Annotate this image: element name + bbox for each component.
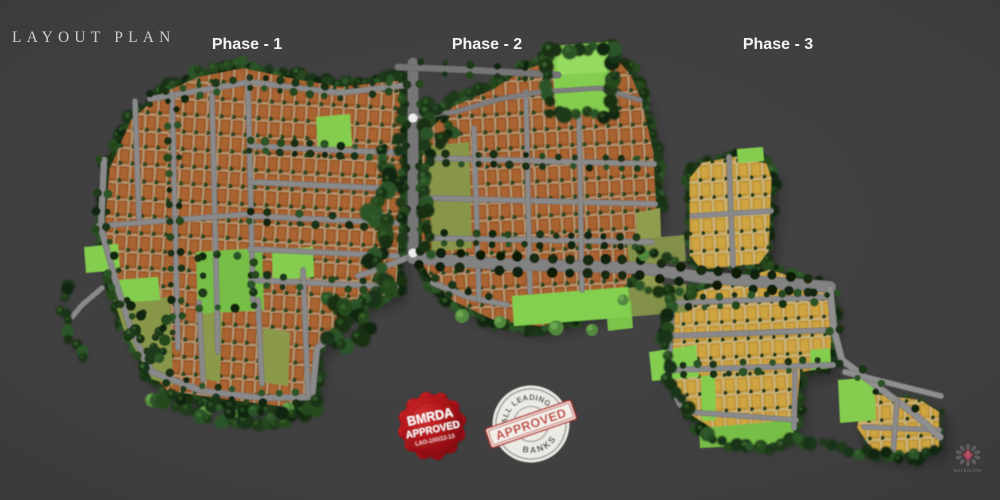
svg-text:SAI KALYAN: SAI KALYAN (954, 468, 981, 473)
svg-text:Phase - 1: Phase - 1 (212, 36, 282, 53)
svg-text:Phase - 2: Phase - 2 (452, 36, 522, 53)
svg-text:LAYOUT PLAN: LAYOUT PLAN (12, 29, 176, 46)
svg-text:Phase - 3: Phase - 3 (743, 36, 813, 53)
